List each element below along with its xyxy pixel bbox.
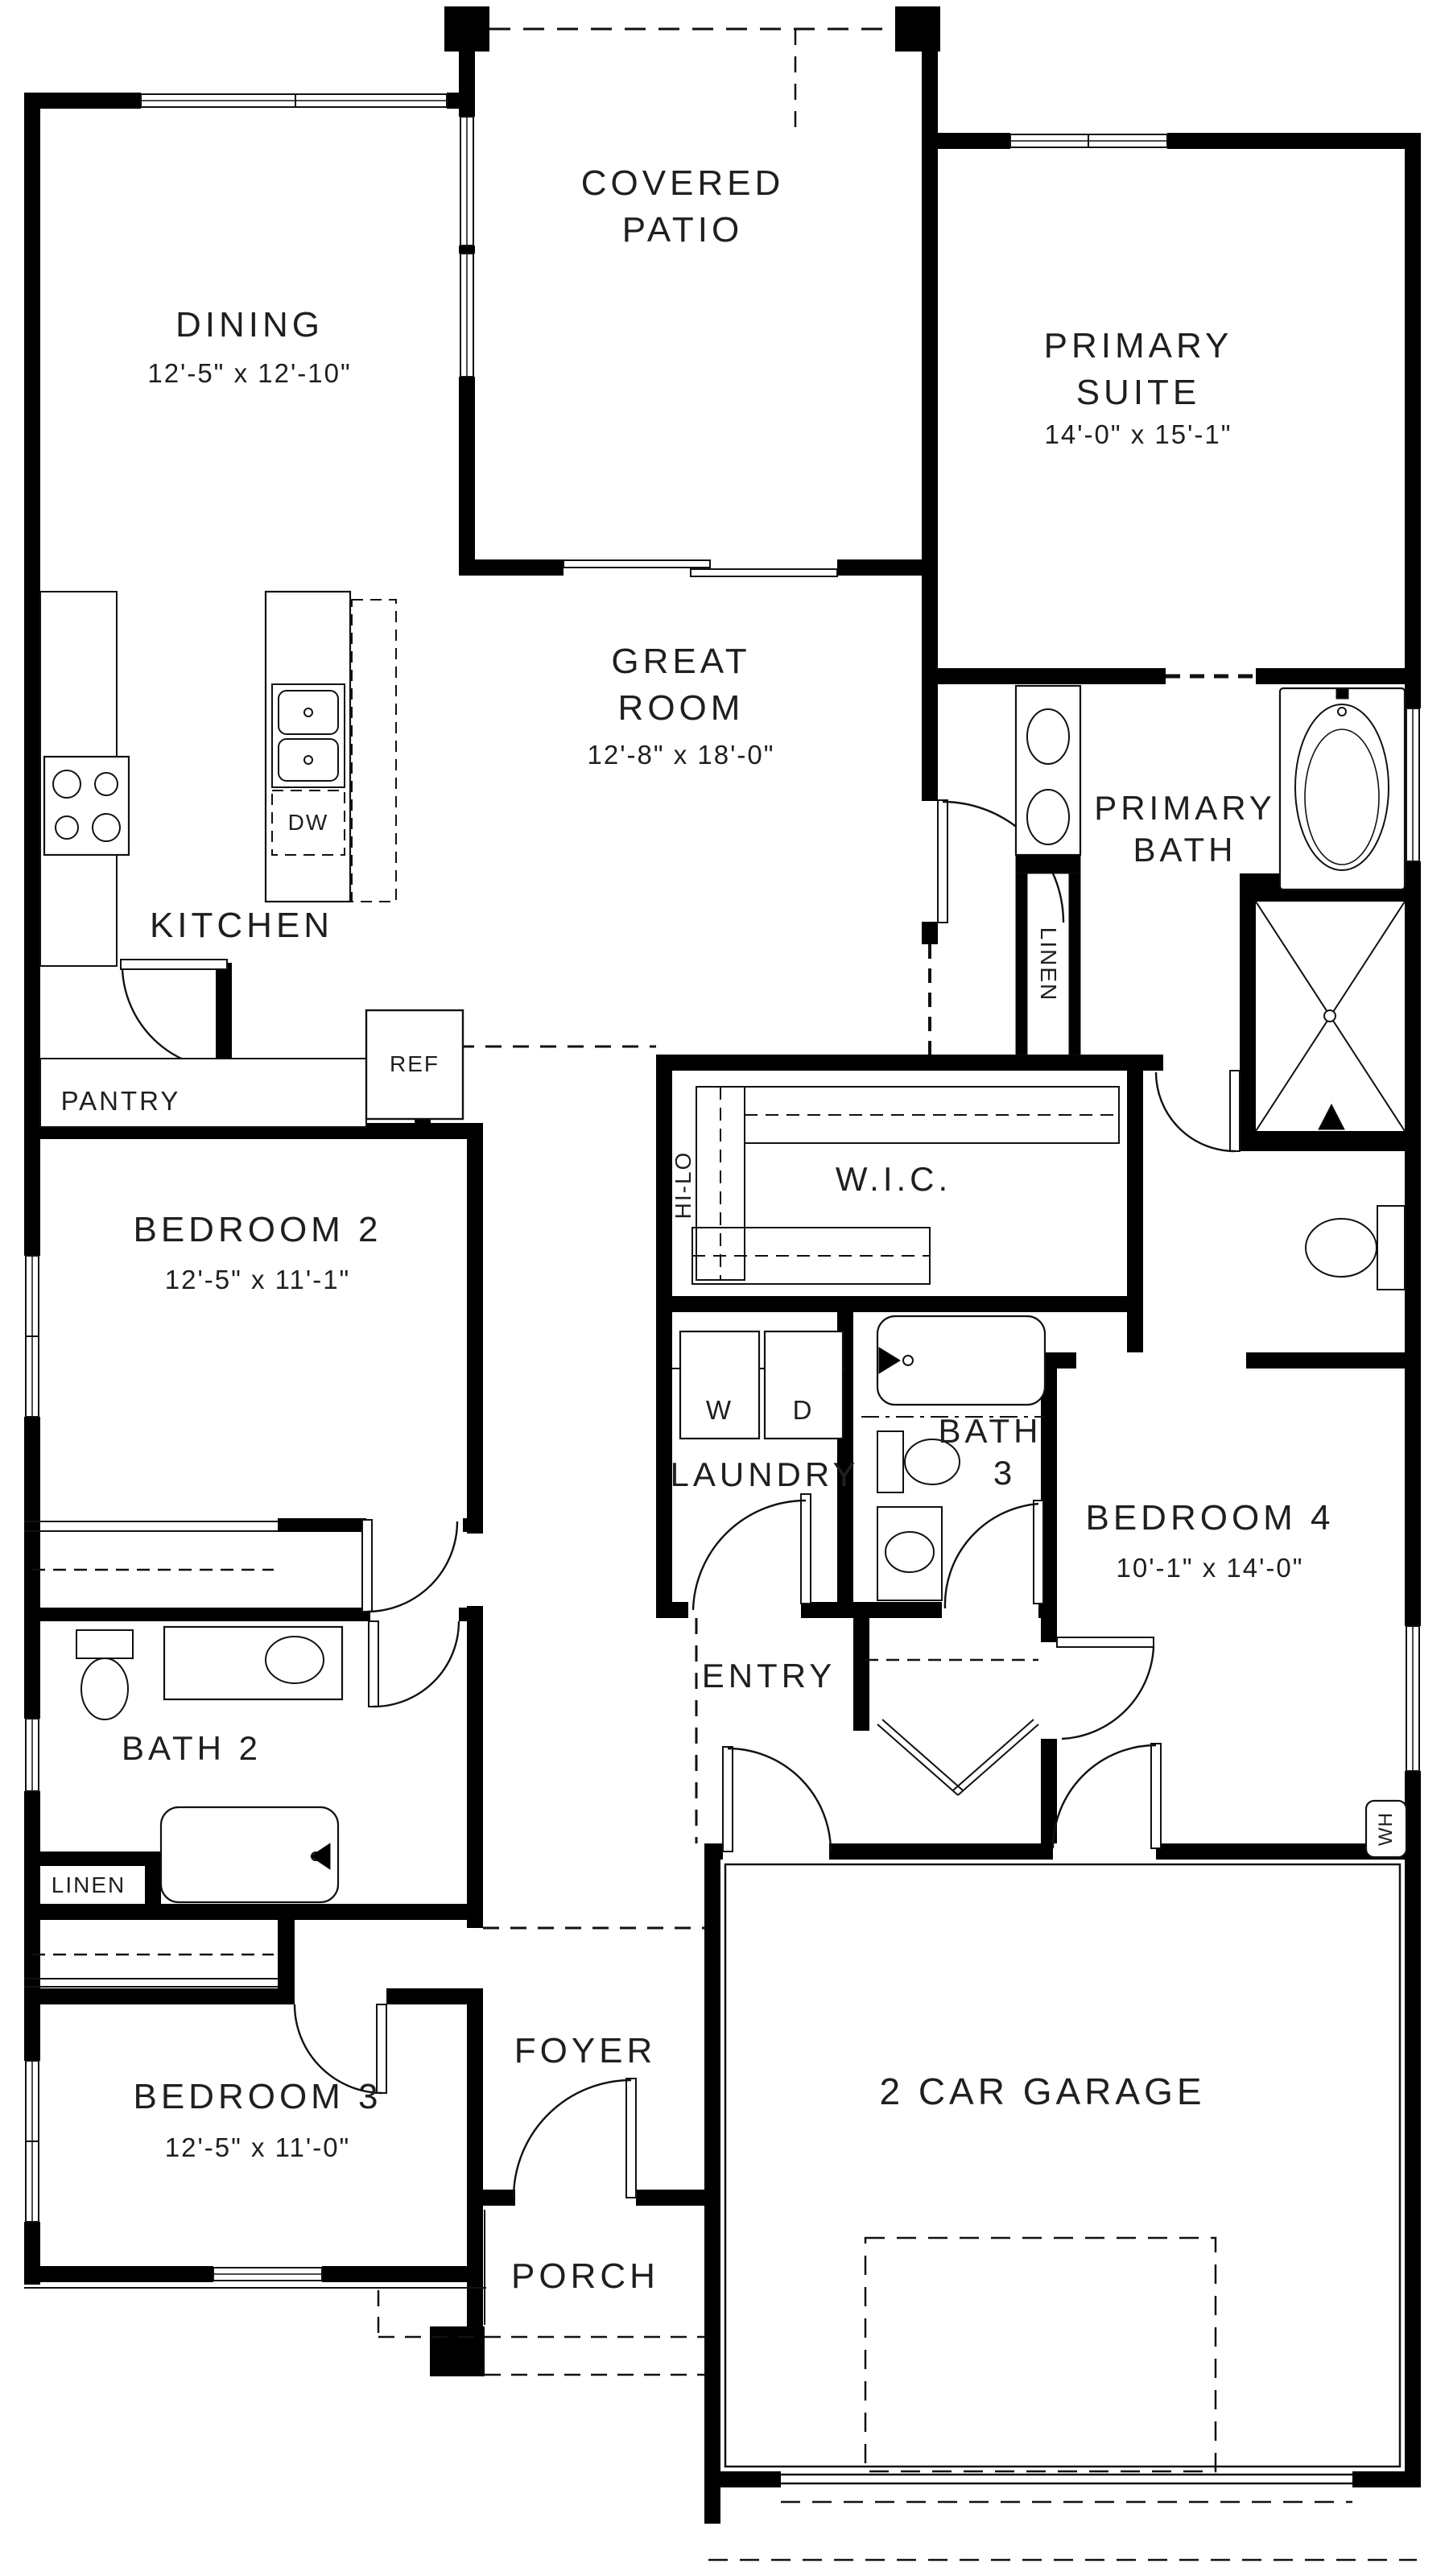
range-cooktop [44, 757, 129, 855]
island-overhang [352, 600, 396, 902]
room-label-bedroom3: BEDROOM 3 [133, 2077, 382, 2117]
room-label-great-room-2: ROOM [618, 688, 745, 729]
room-label-porch: PORCH [511, 2256, 659, 2297]
room-label-bath2: BATH 2 [122, 1729, 262, 1768]
wic-rod-bottom [692, 1228, 930, 1284]
primary-vanity [1016, 686, 1080, 873]
room-label-entry: ENTRY [702, 1657, 836, 1695]
label-refrigerator: REF [390, 1051, 440, 1077]
room-dims-bedroom2: 12'-5" x 11'-1" [165, 1265, 351, 1295]
patio-post-right [895, 6, 940, 52]
room-dims-bedroom3: 12'-5" x 11'-0" [165, 2132, 351, 2163]
door-front [514, 2079, 636, 2198]
floor-plan: COVERED PATIO DINING 12'-5" x 12'-10" PR… [0, 0, 1449, 2576]
door-pantry [121, 960, 227, 1069]
door-laundry [693, 1494, 811, 1610]
label-dishwasher: DW [288, 810, 329, 836]
wic-rod-left [696, 1087, 745, 1280]
window-patio-left-2 [460, 254, 473, 377]
room-label-great-room-1: GREAT [611, 642, 750, 682]
primary-tub [1280, 688, 1405, 890]
room-label-foyer: FOYER [514, 2031, 657, 2071]
window-bedroom3-left [26, 2061, 39, 2222]
window-bedroom4-right [1406, 1626, 1419, 1771]
room-label-pantry: PANTRY [61, 1086, 181, 1117]
door-bath2 [369, 1621, 459, 1707]
window-dining-top [141, 94, 447, 107]
label-linen-primary: LINEN [1035, 927, 1061, 1001]
sliding-glass-door-patio [563, 560, 837, 576]
room-label-laundry: LAUNDRY [671, 1455, 860, 1494]
room-label-wic: W.I.C. [836, 1160, 952, 1199]
window-patio-left-1 [460, 117, 473, 246]
wic-rod-top [745, 1087, 1119, 1143]
door-garage-left [723, 1747, 831, 1851]
bath3-vanity [877, 1507, 942, 1600]
room-label-primary-suite-2: SUITE [1076, 373, 1201, 413]
garage-door-sill [781, 2475, 1352, 2483]
room-label-primary-suite-1: PRIMARY [1044, 326, 1233, 366]
room-dims-dining: 12'-5" x 12'-10" [147, 358, 351, 389]
room-label-primary-bath-2: BATH [1133, 831, 1237, 869]
door-bedroom4 [1057, 1637, 1154, 1739]
room-dims-great-room: 12'-8" x 18'-0" [588, 740, 775, 770]
door-bedroom2 [362, 1520, 457, 1612]
bifold-doors-entry-closet [877, 1719, 1038, 1795]
room-label-bedroom2: BEDROOM 2 [133, 1210, 382, 1250]
room-label-dining: DINING [175, 305, 324, 345]
room-label-bedroom4: BEDROOM 4 [1085, 1498, 1334, 1538]
window-primary-bath-right [1406, 708, 1419, 861]
door-bath3 [945, 1501, 1043, 1608]
primary-toilet [1306, 1206, 1405, 1290]
window-bedroom3-bottom [213, 2268, 322, 2281]
porch-post [430, 2326, 485, 2376]
room-label-bath3-2: 3 [993, 1454, 1016, 1492]
label-dryer: D [793, 1395, 815, 1426]
bath3-tub [877, 1316, 1045, 1405]
room-dims-bedroom4: 10'-1" x 14'-0" [1117, 1553, 1304, 1583]
bath2-toilet [76, 1630, 133, 1719]
room-dims-primary-suite: 14'-0" x 15'-1" [1045, 419, 1232, 450]
room-label-kitchen: KITCHEN [150, 906, 333, 946]
bath2-vanity [164, 1627, 342, 1699]
window-bath2-left [26, 1719, 39, 1791]
door-water-closet [1156, 1071, 1240, 1151]
label-washer: W [706, 1395, 733, 1426]
room-label-covered-patio-2: PATIO [622, 210, 744, 250]
window-bedroom2-left [26, 1256, 39, 1417]
label-linen-hall: LINEN [52, 1872, 126, 1898]
room-label-primary-bath-1: PRIMARY [1094, 789, 1276, 828]
window-primary-suite-top [1010, 134, 1167, 147]
bath2-tub [161, 1807, 338, 1902]
label-hi-lo: HI-LO [671, 1151, 696, 1220]
garage-slab-dashed [865, 2238, 1216, 2471]
garage-inner-wall-line [725, 1864, 1400, 2467]
island-sink [272, 684, 345, 787]
room-label-bath3-1: BATH [939, 1412, 1042, 1451]
patio-post-left [444, 6, 489, 52]
room-label-covered-patio-1: COVERED [581, 163, 785, 204]
door-garage-entry [1053, 1744, 1161, 1848]
label-water-heater: WH [1375, 1812, 1397, 1846]
primary-shower [1256, 902, 1405, 1131]
room-label-garage: 2 CAR GARAGE [879, 2070, 1205, 2113]
